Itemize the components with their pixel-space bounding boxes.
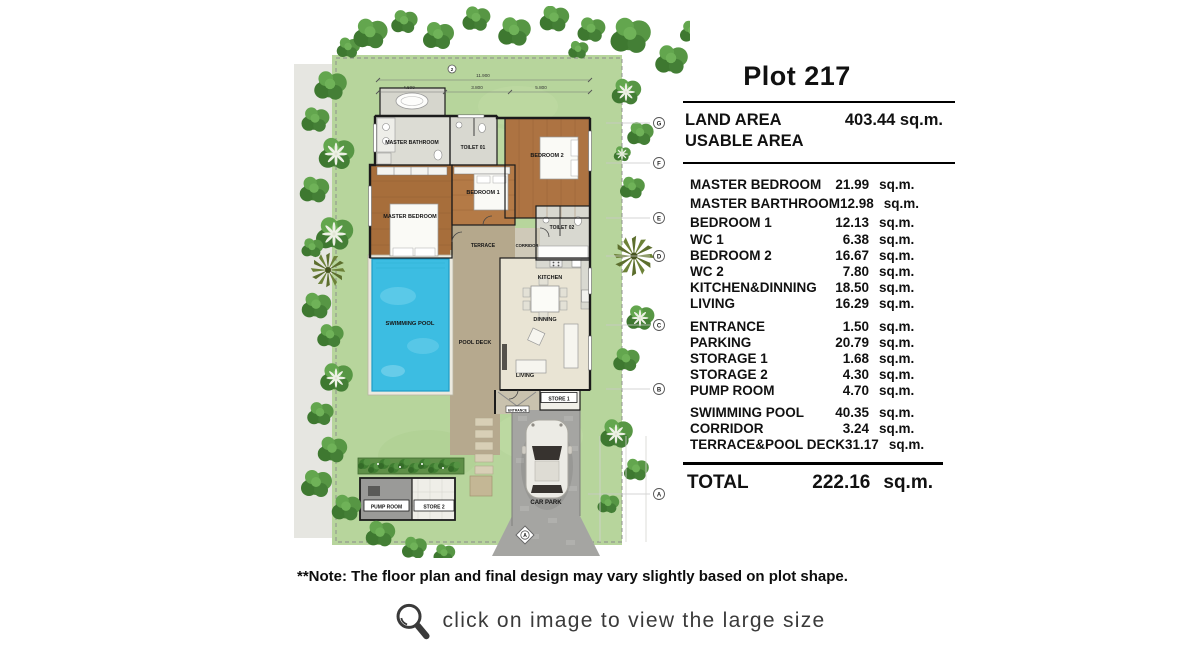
room-name: STORAGE 2: [690, 367, 821, 383]
room-unit: sq.m.: [879, 232, 915, 248]
label-toilet-01: TOILET 01: [461, 145, 486, 151]
table-row: PUMP ROOM4.70sq.m.: [690, 383, 915, 399]
table-row: BEDROOM 112.13sq.m.: [690, 215, 915, 231]
table-row: MASTER BEDROOM21.99sq.m.: [690, 177, 915, 193]
room-unit: sq.m.: [879, 335, 915, 351]
room-name: MASTER BEDROOM: [690, 177, 821, 193]
label-store-1: STORE 1: [548, 397, 570, 403]
label-bedroom-2: BEDROOM 2: [530, 153, 563, 159]
dim-seg3: 5.800: [535, 85, 547, 90]
label-corridor: CORRIDOR: [516, 243, 539, 248]
page-title: Plot 217: [683, 60, 955, 92]
label-pump-room: PUMP ROOM: [371, 505, 402, 511]
label-swimming-pool: SWIMMING POOL: [386, 321, 435, 327]
table-row: KITCHEN&DINNING18.50sq.m.: [690, 280, 915, 296]
grid-marker-b: B: [657, 387, 662, 393]
grid-marker-d: D: [657, 254, 662, 260]
room-name: LIVING: [690, 296, 821, 312]
label-car-park: CAR PARK: [530, 500, 562, 506]
view-large-caption: click on image to view the large size: [442, 609, 825, 633]
room-name: ENTRANCE: [690, 319, 821, 335]
label-master-bedroom: MASTER BEDROOM: [383, 214, 437, 220]
room-name: KITCHEN&DINNING: [690, 280, 821, 296]
room-unit: sq.m.: [879, 421, 915, 437]
room-unit: sq.m.: [879, 264, 915, 280]
label-toilet-02: TOILET 02: [550, 225, 575, 231]
room-name: STORAGE 1: [690, 351, 821, 367]
table-row: BEDROOM 216.67sq.m.: [690, 248, 915, 264]
room-name: BEDROOM 1: [690, 215, 821, 231]
view-large-link[interactable]: click on image to view the large size: [10, 601, 1200, 641]
room-unit: sq.m.: [884, 196, 919, 212]
room-area: 3.24: [821, 421, 869, 437]
room-name: WC 2: [690, 264, 821, 280]
grid-marker-g: G: [657, 121, 662, 127]
table-row: SWIMMING POOL40.35sq.m.: [690, 405, 915, 421]
table-row: WC 16.38sq.m.: [690, 232, 915, 248]
label-master-bathroom: MASTER BATHROOM: [385, 140, 439, 146]
table-row: WC 27.80sq.m.: [690, 264, 915, 280]
room-area: 7.80: [821, 264, 869, 280]
room-name: TERRACE&POOL DECK: [690, 437, 845, 453]
room-area: 1.50: [821, 319, 869, 335]
room-area: 4.70: [821, 383, 869, 399]
table-row: LIVING16.29sq.m.: [690, 296, 915, 312]
room-area: 21.99: [821, 177, 869, 193]
land-area-row: LAND AREA 403.44 sq.m.: [685, 110, 943, 131]
land-summary: LAND AREA 403.44 sq.m. USABLE AREA: [683, 103, 955, 157]
label-living: LIVING: [516, 373, 534, 379]
room-area-list: MASTER BEDROOM21.99sq.m. MASTER BARTHROO…: [683, 164, 955, 453]
grid-marker-f: F: [657, 161, 661, 167]
total-label: TOTAL: [687, 472, 749, 494]
room-area: 31.17: [845, 437, 879, 453]
land-area-value: 403.44 sq.m.: [845, 110, 943, 131]
note-text: **Note: The floor plan and final design …: [297, 568, 848, 585]
room-unit: sq.m.: [879, 367, 915, 383]
grid-marker-a: A: [657, 492, 662, 498]
magnifier-icon: [394, 601, 431, 641]
room-area: 12.13: [821, 215, 869, 231]
page: MASTER BATHROOM TOILET 01 BEDROOM 2 BEDR…: [0, 0, 1200, 660]
label-kitchen: KITCHEN: [538, 275, 562, 281]
area-summary-panel: Plot 217 LAND AREA 403.44 sq.m. USABLE A…: [683, 60, 955, 494]
table-row: CORRIDOR3.24sq.m.: [690, 421, 915, 437]
floor-plan-image[interactable]: MASTER BATHROOM TOILET 01 BEDROOM 2 BEDR…: [278, 6, 690, 558]
room-unit: sq.m.: [879, 319, 915, 335]
room-unit: sq.m.: [879, 296, 915, 312]
room-area: 6.38: [821, 232, 869, 248]
room-name: PARKING: [690, 335, 821, 351]
label-dinning: DINNING: [533, 317, 556, 323]
room-unit: sq.m.: [879, 351, 915, 367]
room-area: 20.79: [821, 335, 869, 351]
total-value: 222.16: [812, 472, 870, 494]
table-row: STORAGE 11.68sq.m.: [690, 351, 915, 367]
dim-seg1: 4.500: [403, 85, 415, 90]
label-terrace: TERRACE: [471, 243, 496, 249]
room-name: WC 1: [690, 232, 821, 248]
room-area: 40.35: [821, 405, 869, 421]
room-unit: sq.m.: [879, 280, 915, 296]
total-row: TOTAL 222.16 sq.m.: [683, 465, 955, 494]
room-unit: sq.m.: [879, 215, 915, 231]
grid-marker-a-bottom: A: [523, 533, 527, 539]
room-area: 12.98: [840, 196, 874, 212]
room-name: SWIMMING POOL: [690, 405, 821, 421]
car: [521, 420, 573, 510]
room-area: 16.67: [821, 248, 869, 264]
room-name: PUMP ROOM: [690, 383, 821, 399]
total-unit: sq.m.: [883, 472, 933, 494]
usable-area-row: USABLE AREA: [685, 131, 943, 152]
room-name: CORRIDOR: [690, 421, 821, 437]
dim-overall: 11.900: [476, 73, 490, 78]
room-unit: sq.m.: [889, 437, 924, 453]
usable-area-label: USABLE AREA: [685, 131, 804, 152]
room-unit: sq.m.: [879, 248, 915, 264]
room-area: 16.29: [821, 296, 869, 312]
room-unit: sq.m.: [879, 405, 915, 421]
label-pool-deck: POOL DECK: [459, 340, 492, 346]
room-unit: sq.m.: [879, 383, 915, 399]
land-area-label: LAND AREA: [685, 110, 782, 131]
label-bedroom-1: BEDROOM 1: [466, 190, 499, 196]
table-row: ENTRANCE1.50sq.m.: [690, 319, 915, 335]
table-row: MASTER BARTHROOM12.98sq.m.: [690, 196, 915, 212]
grid-marker-c: C: [657, 323, 662, 329]
room-area: 1.68: [821, 351, 869, 367]
table-row: STORAGE 24.30sq.m.: [690, 367, 915, 383]
label-store-2: STORE 2: [423, 505, 445, 511]
label-entrance: ENTRANCE: [508, 409, 528, 413]
table-row: TERRACE&POOL DECK31.17sq.m.: [690, 437, 915, 453]
room-unit: sq.m.: [879, 177, 915, 193]
room-name: BEDROOM 2: [690, 248, 821, 264]
grid-marker-e: E: [657, 216, 661, 222]
room-name: MASTER BARTHROOM: [690, 196, 840, 212]
room-area: 4.30: [821, 367, 869, 383]
room-area: 18.50: [821, 280, 869, 296]
dim-seg2: 3.800: [471, 85, 483, 90]
table-row: PARKING20.79sq.m.: [690, 335, 915, 351]
